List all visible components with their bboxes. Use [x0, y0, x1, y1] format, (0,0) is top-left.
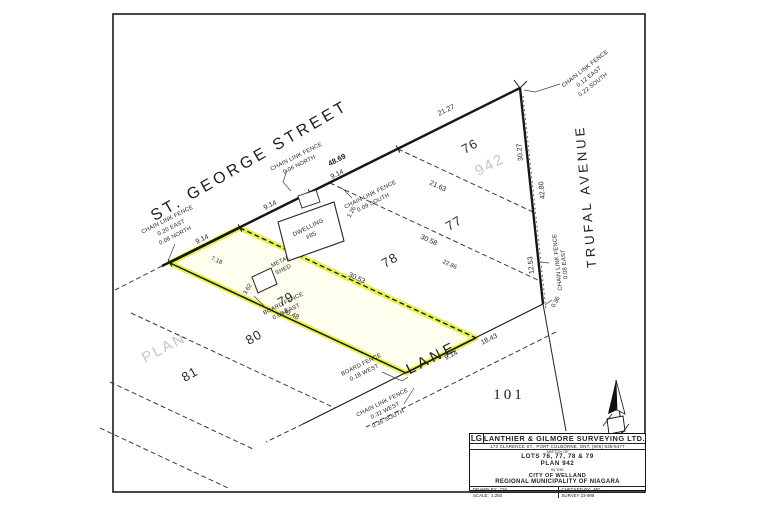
title-block-scale: SCALE: 1:250 SURVEY 23-999 — [470, 493, 645, 498]
plan-drawing: PLAN 942 — [0, 0, 760, 505]
region-line: REGIONAL MUNICIPALITY OF NIAGARA — [495, 479, 620, 486]
drawn-by: DRAWN BY: CM — [470, 487, 558, 492]
title-block: LG LANTHIER & GILMORE SURVEYING LTD. 173… — [469, 433, 646, 491]
surveyor-logo: LG — [470, 434, 484, 443]
scale-value: SCALE: 1:250 — [470, 493, 558, 498]
lot-number-101: 101 — [493, 387, 525, 403]
title-block-description: SKETCH OF LOTS 76, 77, 78 & 79 PLAN 942 … — [470, 450, 645, 487]
survey-number: SURVEY 23-999 — [558, 493, 646, 498]
surveyor-company-name: LANTHIER & GILMORE SURVEYING LTD. — [484, 434, 645, 443]
checked-by: CHECKED BY: MG — [558, 487, 646, 492]
survey-plan-sheet: PLAN 942 — [0, 0, 760, 505]
title-block-header: LG LANTHIER & GILMORE SURVEYING LTD. — [470, 434, 645, 444]
